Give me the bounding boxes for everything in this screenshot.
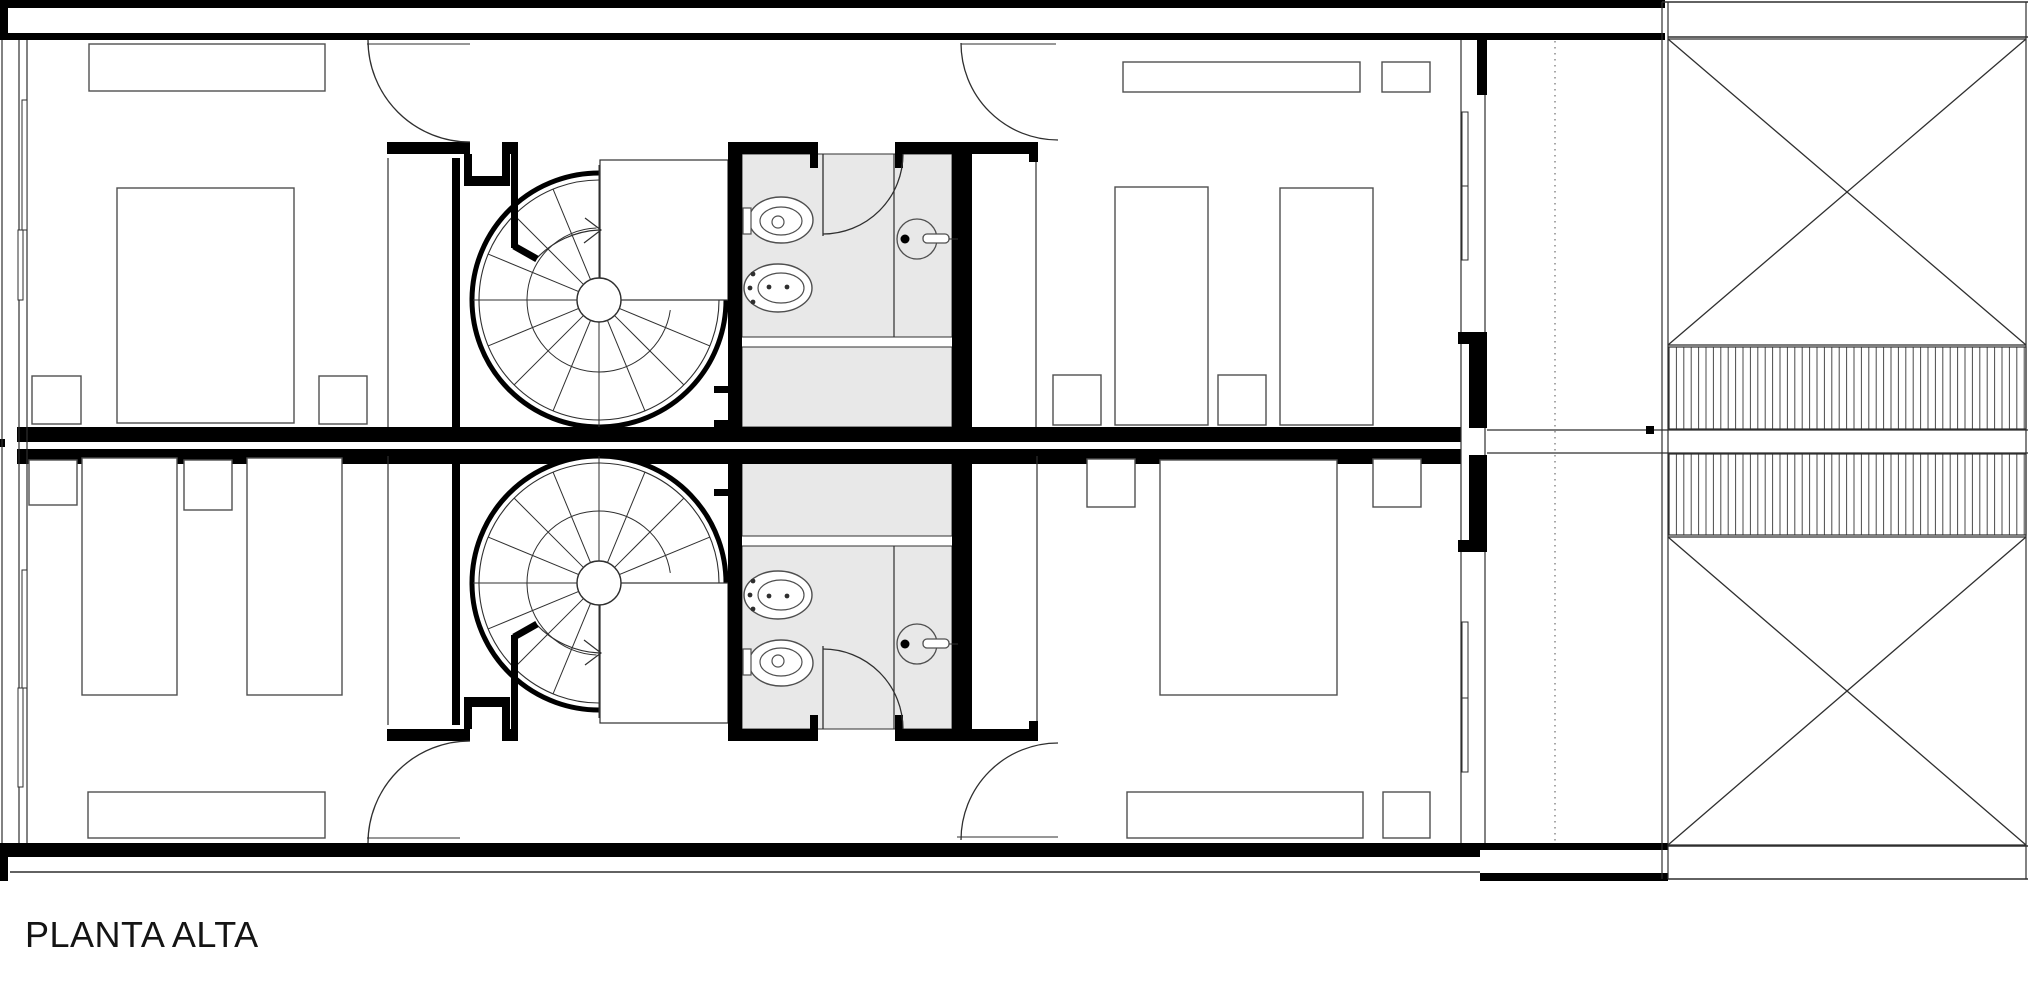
wall-segment [452,158,460,427]
wall-tab [714,456,728,463]
wall-segment [387,729,470,741]
top-wall-inner [0,33,1665,40]
bath-wall-top [728,142,818,154]
wall-segment [452,456,460,725]
toilet-tank [743,208,751,234]
bidet-fittings [748,593,753,598]
top-wall-outer [0,0,1665,8]
bidet-fittings [767,594,772,599]
sink-faucet [923,639,949,648]
bidet [744,264,812,312]
bath-wall-bottom [728,729,818,741]
dresser [88,792,325,838]
wall-stub [1469,455,1487,540]
floor-plan-canvas [0,0,2029,983]
wall-stub [1477,39,1487,95]
bidet-fittings [751,579,756,584]
toilet-tank [743,649,751,675]
nightstand [319,376,367,424]
wall-segment [511,635,518,741]
door-swing [961,743,1058,840]
single-bed [1115,187,1208,425]
hall-top-floor [742,347,952,427]
bath-wall-right [952,154,972,427]
bottom-wall-outer [1480,843,1668,850]
bottom-wall-cap [0,843,8,881]
door-swing [368,741,470,843]
wall-segment [511,142,518,248]
sink-drain [901,235,910,244]
dresser [89,44,325,91]
wall-tab [714,420,728,427]
bidet-fittings [751,272,756,277]
nightstand [1383,792,1430,838]
wall-tab [714,489,728,496]
wall-stub [1029,142,1038,162]
wall-segment [387,142,470,154]
plan-title: PLANTA ALTA [25,914,259,956]
floor-plan-page: PLANTA ALTA [0,0,2029,983]
bath-wall-right [952,456,972,729]
dresser [1127,792,1363,838]
bidet-fittings [751,607,756,612]
bath-wall-top [895,142,1037,154]
sink-drain [901,640,910,649]
nightstand [184,460,232,510]
sink-faucet [923,234,949,243]
window [22,100,27,230]
top-wall-cap [0,0,8,40]
door-swing [961,43,1058,140]
stair-hub-top [577,278,621,322]
bath-wall-left [728,456,742,729]
single-bed [247,458,342,695]
wall-stub [1469,344,1487,428]
bottom-wall-inner [1480,873,1668,881]
stair-landing-bottom [600,583,728,723]
door-swing [368,40,470,142]
window [18,230,23,300]
nightstand [1218,375,1266,425]
bidet-fittings [748,286,753,291]
window [1462,622,1468,772]
wall-stub [1029,721,1038,741]
bidet [744,571,812,619]
wall-stub [1458,540,1487,552]
stair-hub-bottom [577,561,621,605]
bath-wall-bottom [895,729,1037,741]
nightstand [1382,62,1430,92]
wall-tab [714,386,728,393]
hall-bottom-floor [742,456,952,536]
stair-landing-top [600,160,728,300]
bath-wall-left [728,154,742,427]
single-bed [1280,188,1373,425]
toilet [749,640,813,686]
nightstand [1373,459,1421,507]
double-bed [117,188,294,423]
nightstand [29,460,77,505]
wall-stub [1458,332,1487,344]
bidet-fittings [767,285,772,290]
bottom-wall [8,843,1480,857]
door-jamb [810,715,818,729]
window [18,688,23,787]
double-bed [1160,460,1337,695]
door-jamb [810,154,818,168]
survey-dot-right [1646,426,1654,434]
bidet-fittings [785,594,790,599]
toilet [749,197,813,243]
nightstand [1087,459,1135,507]
window [22,570,27,688]
party-wall-upper [17,427,1461,442]
bidet-fittings [751,300,756,305]
nightstand [1053,375,1101,425]
dresser [1123,62,1360,92]
bidet-fittings [785,285,790,290]
single-bed [82,458,177,695]
nightstand [32,376,81,424]
